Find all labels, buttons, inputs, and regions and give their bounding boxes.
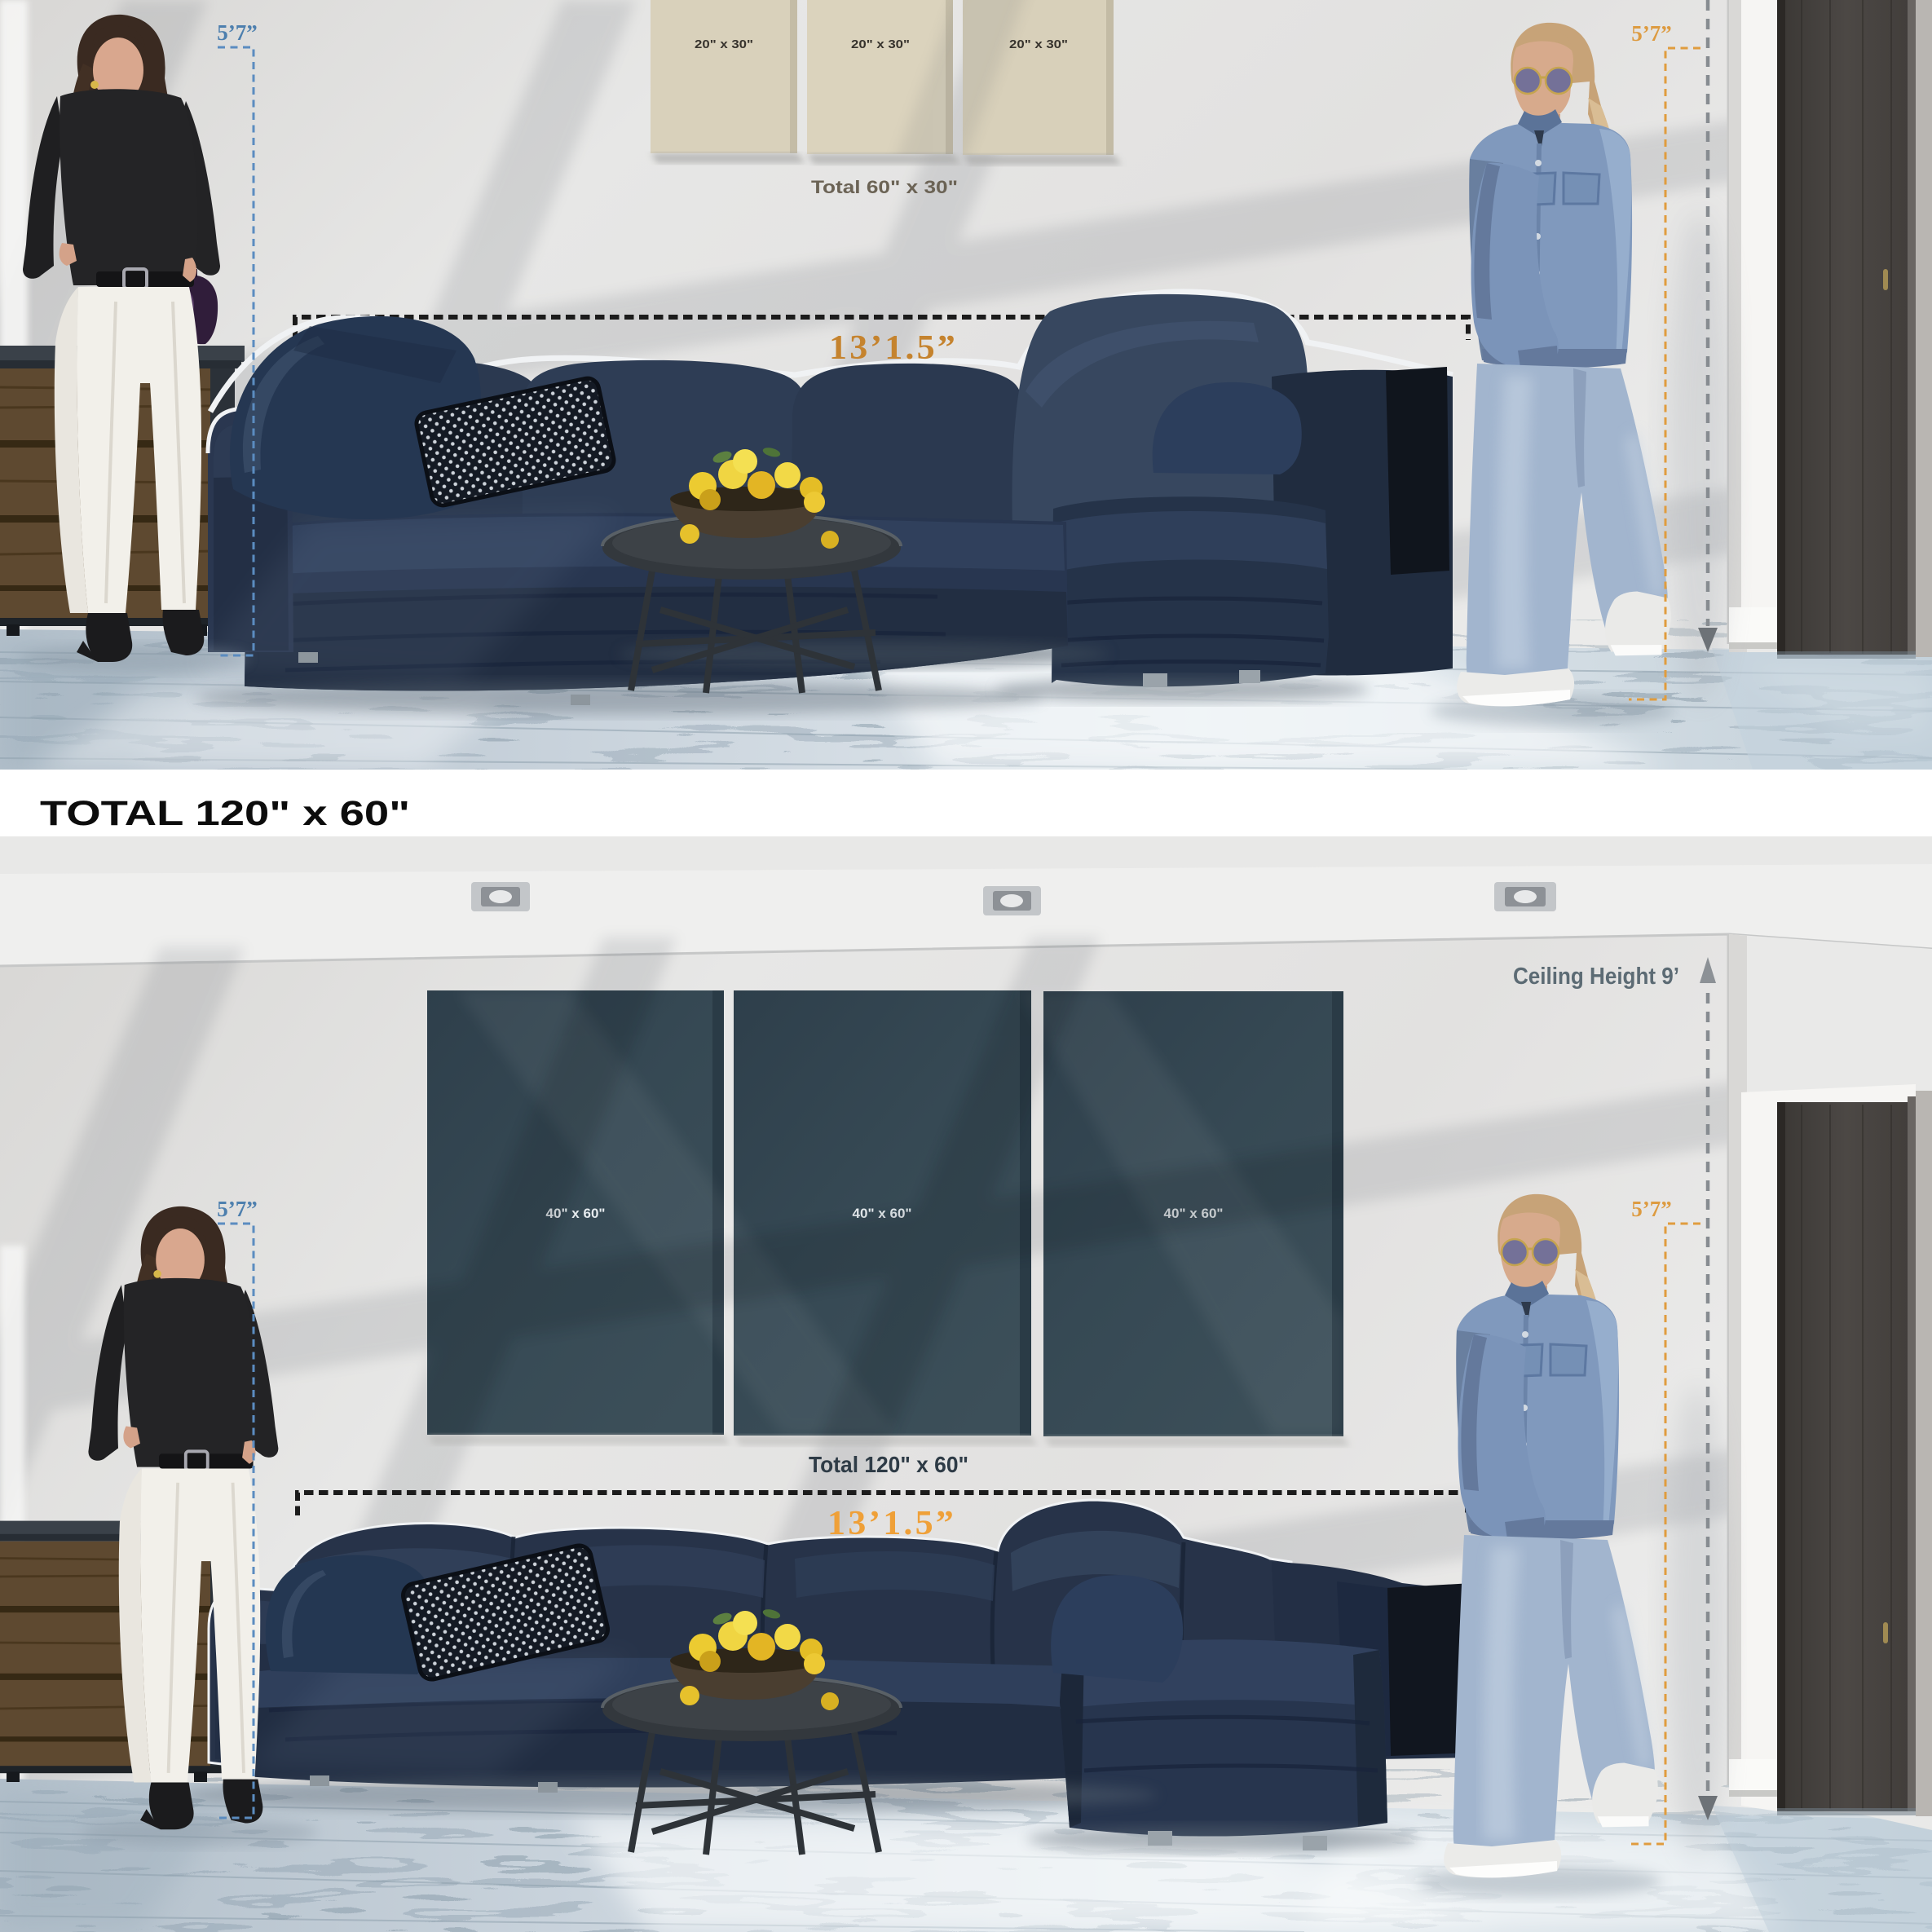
svg-text:5’7”: 5’7” — [1631, 21, 1672, 46]
svg-text:20" x 30": 20" x 30" — [695, 37, 753, 51]
svg-text:20" x 30": 20" x 30" — [1009, 37, 1068, 51]
svg-text:Ceiling Height 9’: Ceiling Height 9’ — [1513, 964, 1679, 990]
svg-text:Total 60" x 30": Total 60" x 30" — [811, 177, 958, 197]
svg-text:5’7”: 5’7” — [1631, 1197, 1672, 1221]
svg-text:13’1.5”: 13’1.5” — [827, 1505, 956, 1542]
svg-text:TOTAL 120" x 60": TOTAL 120" x 60" — [40, 794, 410, 833]
svg-text:Total 120" x 60": Total 120" x 60" — [809, 1452, 968, 1477]
svg-text:5’7”: 5’7” — [217, 20, 258, 45]
svg-text:20" x 30": 20" x 30" — [851, 37, 910, 51]
svg-text:5’7”: 5’7” — [217, 1197, 258, 1221]
svg-text:13’1.5”: 13’1.5” — [829, 329, 958, 367]
